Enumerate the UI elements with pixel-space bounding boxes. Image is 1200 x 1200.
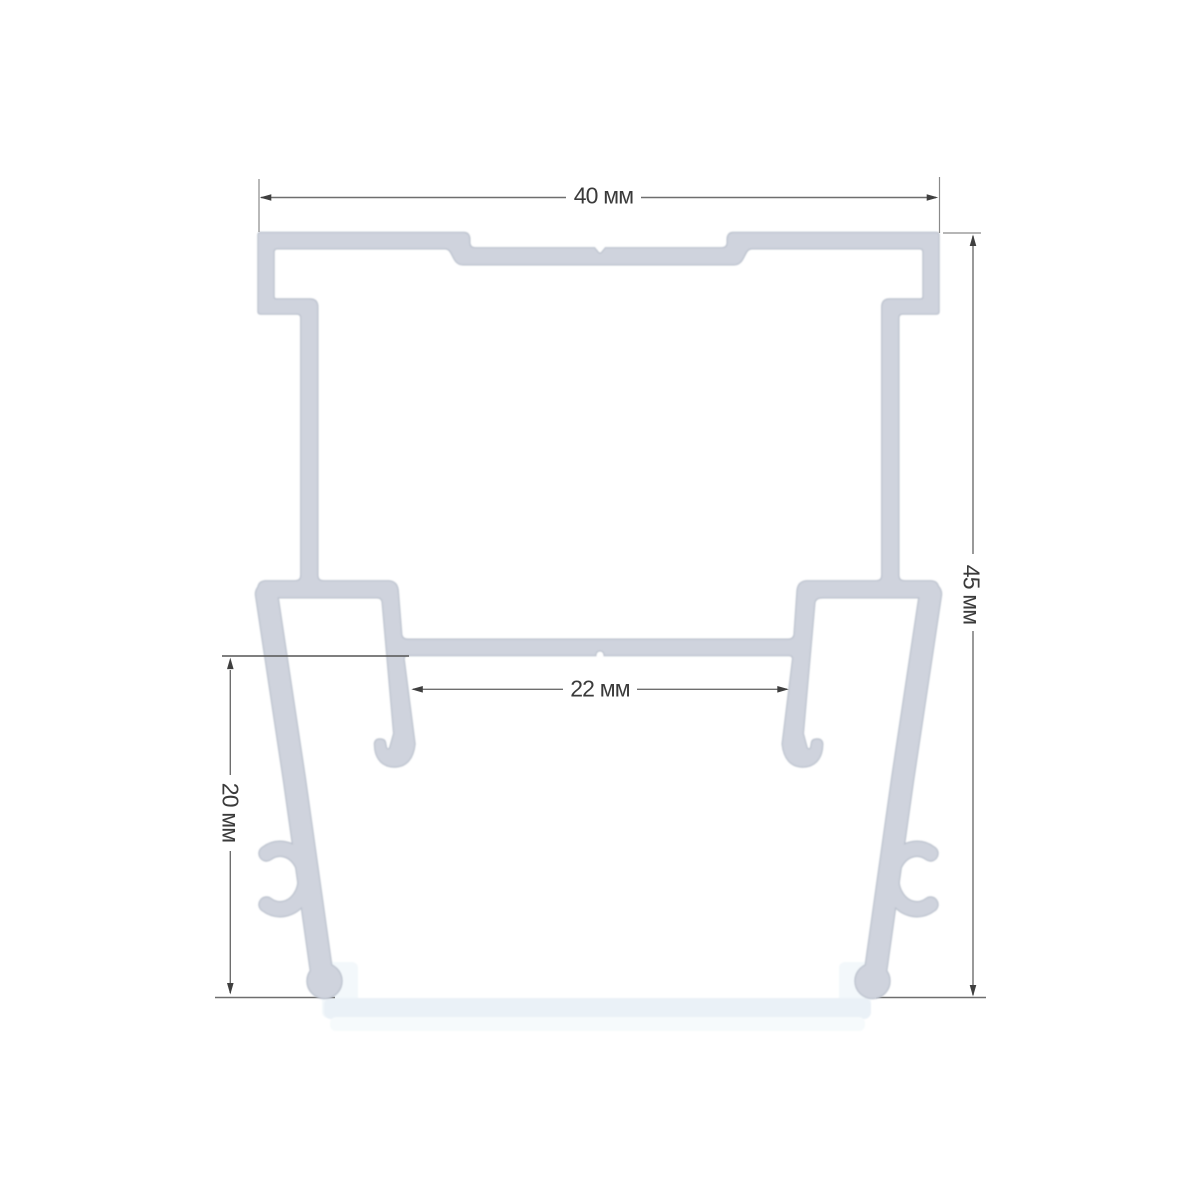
svg-text:22 мм: 22 мм [570,676,630,702]
svg-text:45 мм: 45 мм [959,565,985,625]
svg-text:40 мм: 40 мм [574,183,634,209]
svg-text:20 мм: 20 мм [217,783,243,843]
